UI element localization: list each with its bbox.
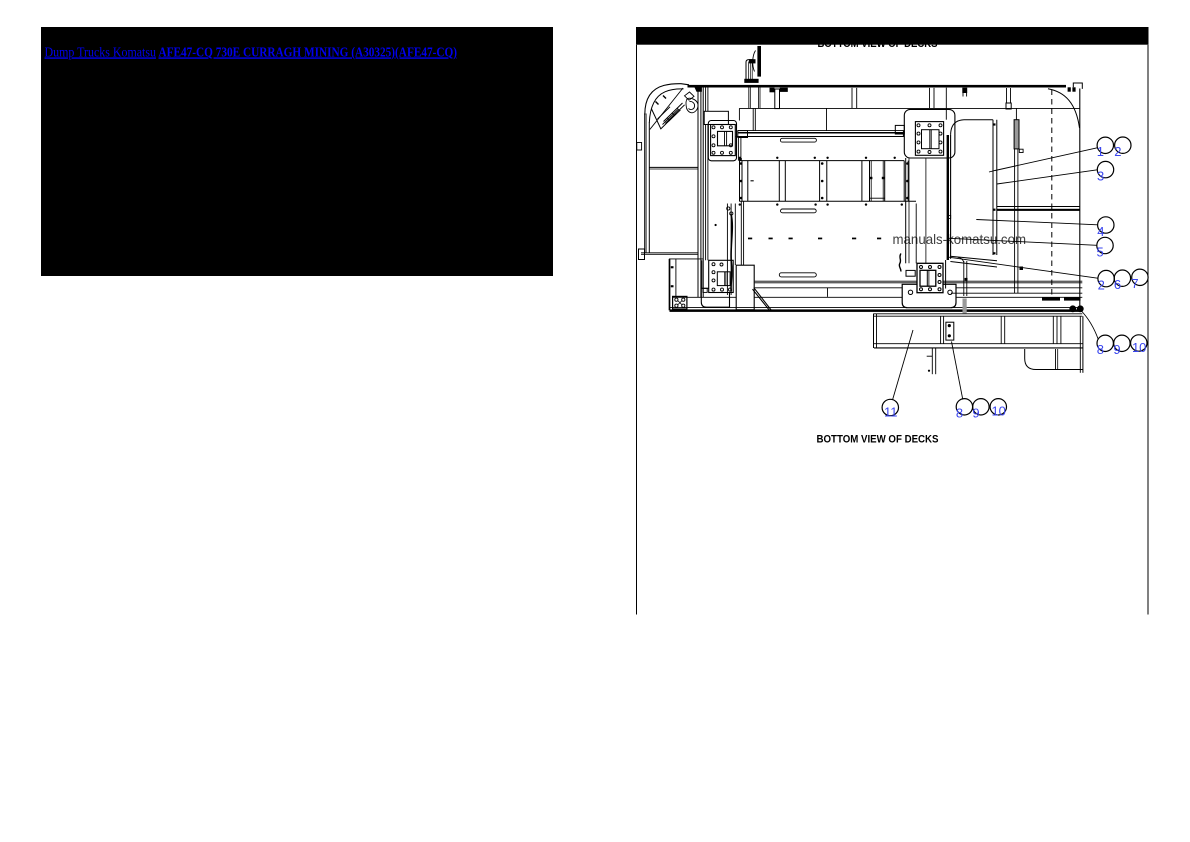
svg-text:2: 2 [1114, 144, 1121, 159]
svg-text:AFE47-CQ 730E CURRAGH MINING (: AFE47-CQ 730E CURRAGH MINING (A30325)(AF… [159, 44, 458, 60]
svg-text:7: 7 [1131, 276, 1138, 291]
svg-text:1: 1 [1097, 144, 1104, 159]
svg-text:6: 6 [1114, 277, 1121, 292]
svg-text:10: 10 [991, 404, 1005, 419]
svg-text:8: 8 [1097, 342, 1104, 357]
svg-text:9: 9 [1113, 342, 1120, 357]
svg-text:Dump Trucks Komatsu: Dump Trucks Komatsu [45, 44, 157, 59]
svg-text:BOTTOM VIEW OF DECKS: BOTTOM VIEW OF DECKS [817, 434, 939, 446]
svg-text:10: 10 [1132, 340, 1146, 355]
svg-text:9: 9 [972, 406, 979, 421]
svg-text:11: 11 [884, 404, 898, 419]
svg-text:5: 5 [1097, 244, 1104, 259]
svg-text:2: 2 [1098, 277, 1105, 292]
svg-text:4: 4 [1097, 224, 1104, 239]
svg-text:3: 3 [1097, 168, 1104, 183]
svg-text:8: 8 [956, 406, 963, 421]
